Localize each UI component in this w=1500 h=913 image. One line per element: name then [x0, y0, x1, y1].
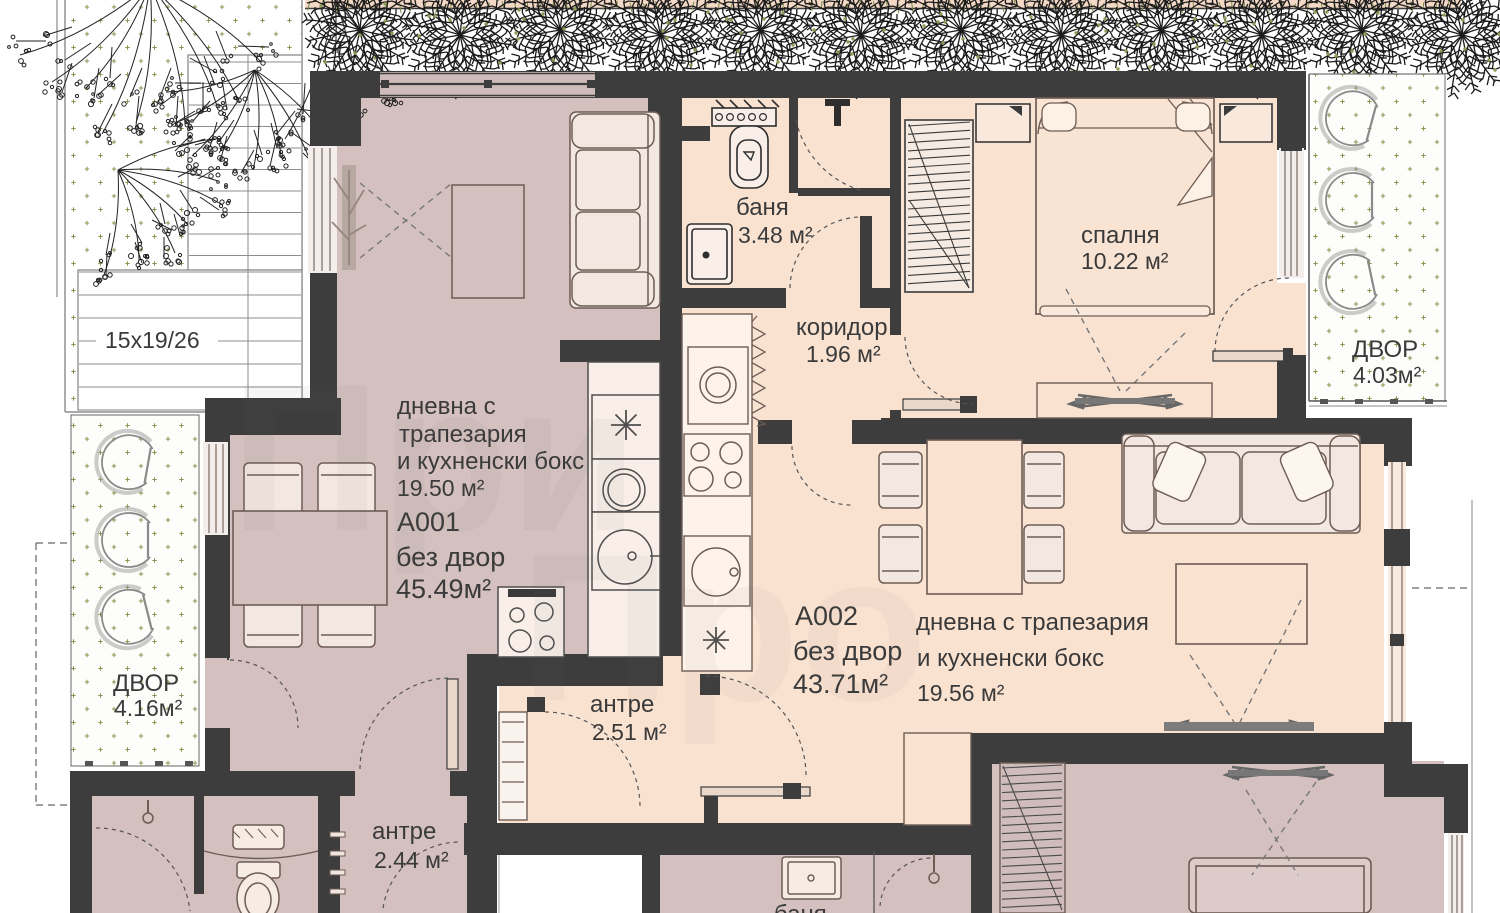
- svg-text:3.48 м²: 3.48 м²: [738, 222, 813, 248]
- svg-text:ДВОР: ДВОР: [1352, 336, 1418, 363]
- svg-text:ДВОР: ДВОР: [113, 670, 179, 697]
- svg-text:45.49м²: 45.49м²: [396, 574, 491, 604]
- svg-text:Про: Про: [520, 510, 928, 745]
- svg-text:10.22 м²: 10.22 м²: [1081, 248, 1169, 274]
- svg-text:4.03м²: 4.03м²: [1353, 362, 1422, 388]
- svg-text:дневна с трапезария: дневна с трапезария: [916, 609, 1149, 636]
- svg-text:и кухненски бокс: и кухненски бокс: [917, 645, 1104, 672]
- svg-text:баня: баня: [774, 901, 827, 913]
- svg-text:коридор: коридор: [796, 314, 888, 341]
- svg-text:19.56 м²: 19.56 м²: [917, 680, 1005, 706]
- svg-text:1.96 м²: 1.96 м²: [806, 341, 881, 367]
- svg-text:спалня: спалня: [1081, 222, 1160, 249]
- svg-text:баня: баня: [736, 194, 789, 221]
- svg-text:15x19/26: 15x19/26: [105, 327, 200, 353]
- svg-text:4.16м²: 4.16м²: [114, 695, 183, 721]
- svg-text:2.44 м²: 2.44 м²: [374, 847, 449, 873]
- svg-text:антре: антре: [372, 818, 436, 845]
